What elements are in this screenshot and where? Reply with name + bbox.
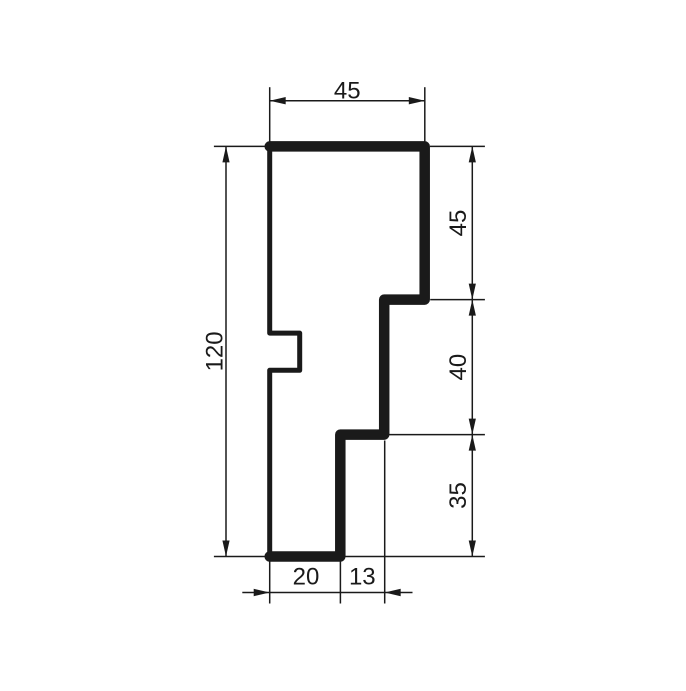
svg-text:45: 45 xyxy=(334,77,361,104)
svg-text:13: 13 xyxy=(349,563,376,590)
svg-text:35: 35 xyxy=(445,482,472,509)
svg-text:120: 120 xyxy=(202,331,229,371)
svg-text:45: 45 xyxy=(445,210,472,237)
svg-text:20: 20 xyxy=(293,563,320,590)
svg-text:40: 40 xyxy=(445,354,472,381)
